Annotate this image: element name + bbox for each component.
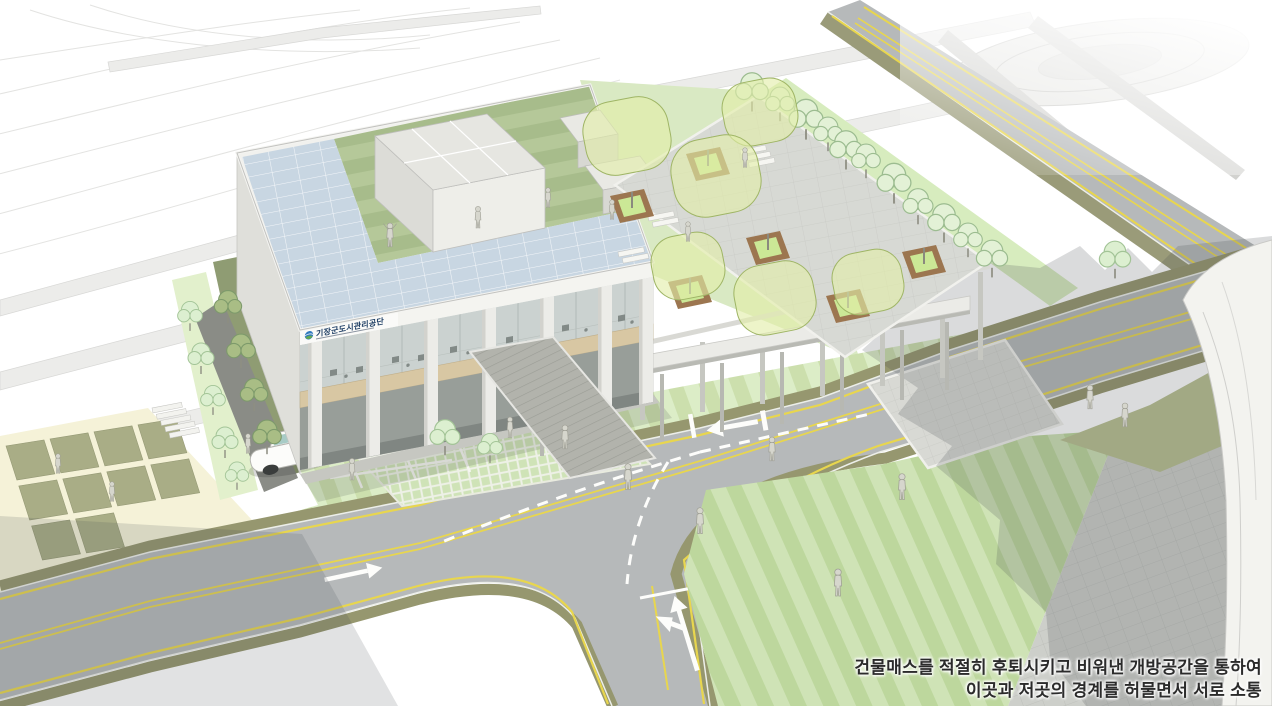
rendering-canvas: 기장군도시관리공단 [0,0,1272,706]
caption-line-2: 이곳과 저곳의 경계를 허물면서 서로 소통 [854,679,1262,702]
annotation-caption: 건물매스를 적절히 후퇴시키고 비워낸 개방공간을 통하여 이곳과 저곳의 경계… [854,656,1262,702]
architectural-rendering: 기장군도시관리공단 [0,0,1272,706]
terrain-haze [900,0,1272,175]
caption-line-1: 건물매스를 적절히 후퇴시키고 비워낸 개방공간을 통하여 [854,656,1262,679]
